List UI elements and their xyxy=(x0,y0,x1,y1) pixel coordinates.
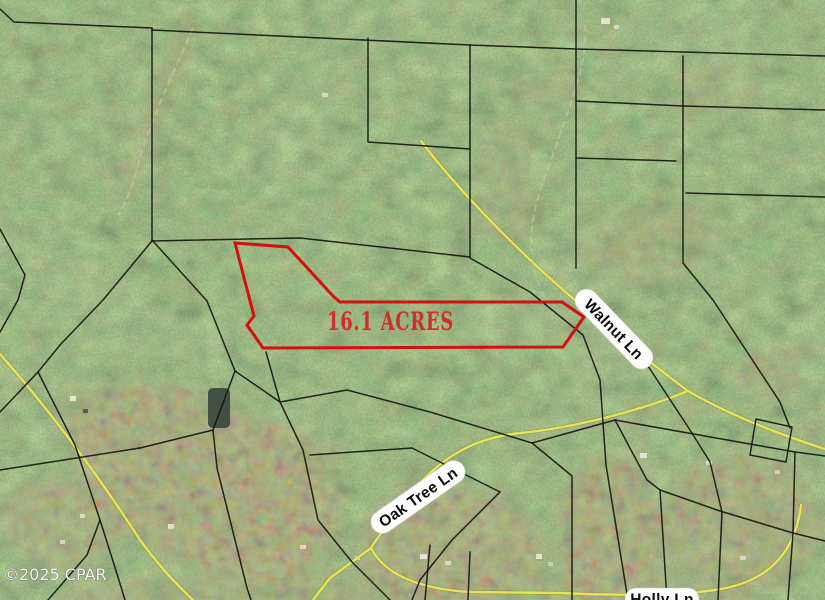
building-marker xyxy=(445,561,451,565)
building-marker xyxy=(775,470,780,474)
road-label-holly-ln: Holly Ln xyxy=(625,588,699,600)
parcel-acreage-label: 16.1 ACRES xyxy=(327,307,454,336)
clearing-patch xyxy=(730,349,810,401)
clearing-patch xyxy=(0,477,122,567)
building-marker xyxy=(614,25,619,29)
building-marker xyxy=(548,562,553,566)
building-marker xyxy=(80,514,85,518)
building-marker xyxy=(420,554,427,559)
aerial-map-stage: 16.1 ACRES Walnut Ln Oak Tree Ln Holly L… xyxy=(0,0,825,600)
building-marker xyxy=(168,524,174,529)
building-marker xyxy=(83,409,88,413)
building-marker xyxy=(322,93,328,97)
clearing-patch xyxy=(55,390,135,450)
aerial-map: 16.1 ACRES Walnut Ln Oak Tree Ln Holly L… xyxy=(0,0,825,600)
clearing-patch xyxy=(202,425,342,585)
building-marker xyxy=(740,556,746,560)
clearing-patch xyxy=(515,55,575,135)
building-marker xyxy=(601,18,610,24)
road-label-text-holly-ln: Holly Ln xyxy=(630,592,694,600)
copyright-watermark: ©2025 CPAR xyxy=(3,565,107,584)
building-marker xyxy=(300,545,306,549)
building-marker xyxy=(536,554,542,559)
building-marker xyxy=(70,396,76,401)
clearing-patch xyxy=(672,64,764,120)
building-marker xyxy=(640,453,647,458)
clearing-patch xyxy=(467,127,543,243)
building-marker xyxy=(60,540,65,544)
